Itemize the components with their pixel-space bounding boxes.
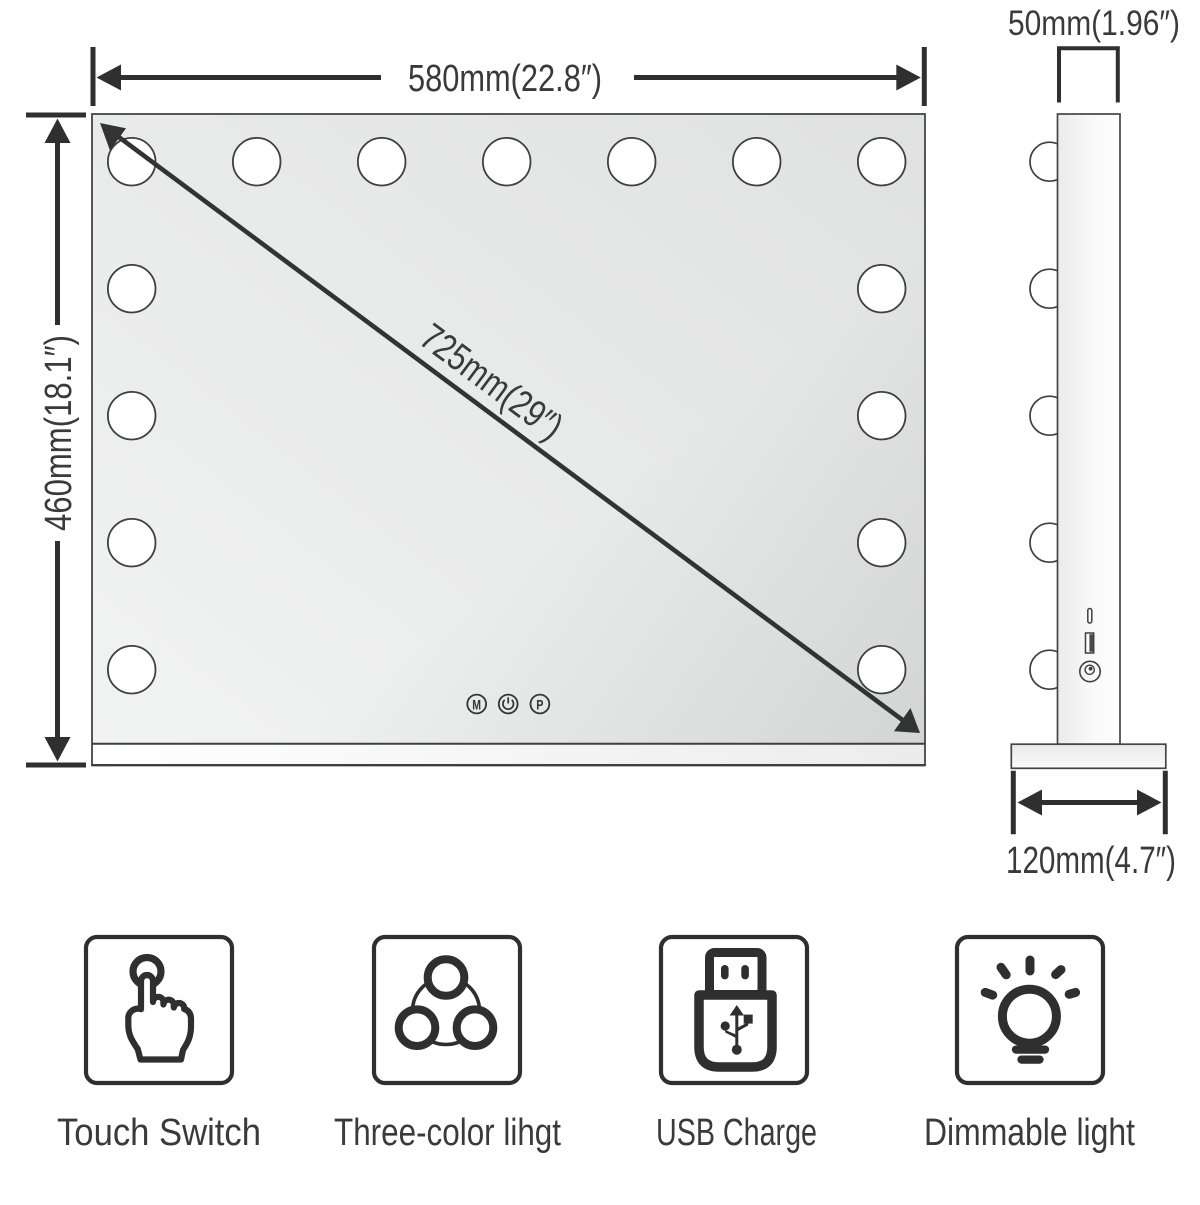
- svg-text:M: M: [472, 697, 481, 713]
- svg-text:120mm(4.7″): 120mm(4.7″): [1006, 840, 1176, 882]
- svg-text:Three-color lihgt: Three-color lihgt: [334, 1112, 561, 1154]
- svg-text:USB Charge: USB Charge: [656, 1112, 817, 1154]
- svg-text:580mm(22.8″): 580mm(22.8″): [408, 58, 602, 100]
- svg-text:50mm(1.96″): 50mm(1.96″): [1008, 4, 1180, 43]
- svg-text:Dimmable light: Dimmable light: [924, 1112, 1135, 1154]
- svg-text:Touch Switch: Touch Switch: [57, 1112, 261, 1154]
- svg-text:P: P: [536, 697, 543, 712]
- svg-text:460mm(18.1″): 460mm(18.1″): [38, 335, 80, 531]
